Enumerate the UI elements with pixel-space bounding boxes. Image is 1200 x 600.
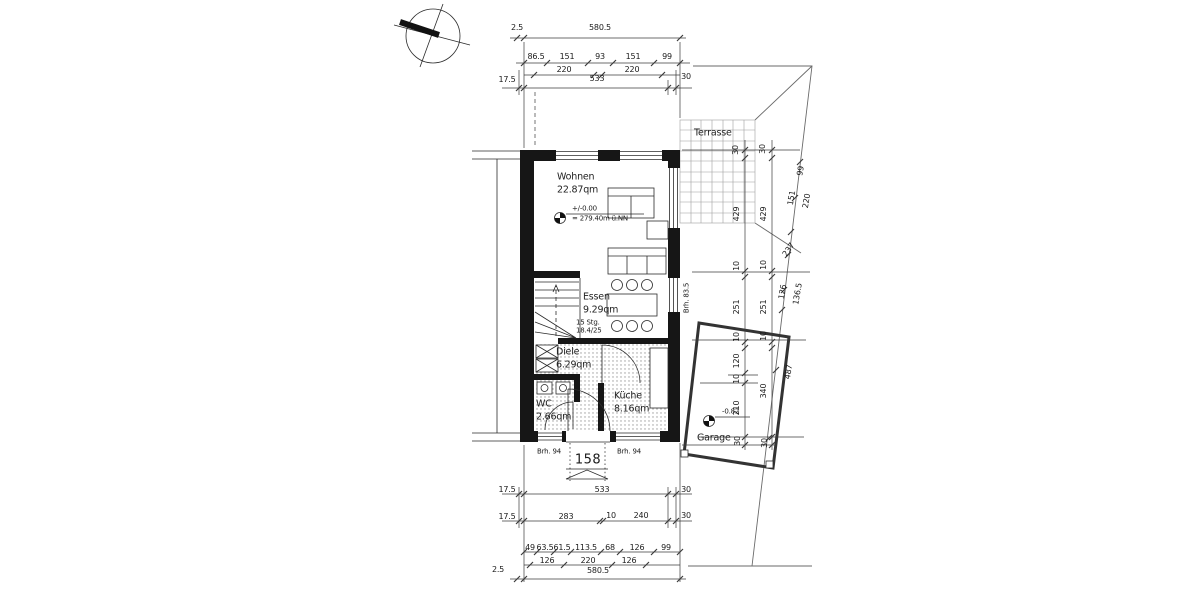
dims_right-4-99: 99 (796, 165, 806, 176)
dims_bottom-3-17.5: 17.5 (498, 513, 515, 521)
floorplan-canvas: 2.5580.586.5151931519922022017.55333017.… (0, 0, 1200, 600)
dims_bottom-6-240: 240 (634, 512, 649, 520)
dims_bottom-5-10: 10 (606, 512, 616, 520)
room-label-kueche: Küche (614, 391, 642, 401)
dims_bottom-2-30: 30 (681, 486, 691, 494)
dims_bottom-11-113.5: 113.5 (575, 544, 597, 552)
dims_bottom-17-126: 126 (622, 557, 637, 565)
dims_right-3-429: 429 (760, 207, 768, 222)
dims_bottom-8-49: 49 (525, 544, 535, 552)
dims_bottom-1-533: 533 (595, 486, 610, 494)
level-garage-value: -0.82 (722, 409, 739, 416)
dims_right-10-251: 251 (733, 300, 741, 315)
room-label-terrasse: Terrasse (694, 128, 732, 138)
room-area-wc: 2.66qm (536, 412, 571, 422)
north-arrow-icon (394, 4, 470, 67)
room-label-garage: Garage (697, 433, 731, 443)
dims_right-21-30: 30 (734, 436, 742, 446)
stairs-note-2: 18.4/25 (576, 328, 601, 335)
entrance-width: 158 (575, 454, 601, 467)
dims_right-22-30: 30 (761, 438, 769, 448)
room-area-wohnen: 22.87qm (557, 185, 598, 195)
dims_top-5-151: 151 (626, 53, 641, 61)
room-label-wohnen: Wohnen (557, 172, 594, 182)
room-label-essen: Essen (583, 292, 610, 302)
dims_top-2-86.5: 86.5 (527, 53, 544, 61)
dims_bottom-9-63.5: 63.5 (536, 544, 553, 552)
dims_right-11-251: 251 (760, 300, 768, 315)
dims_top-9-17.5: 17.5 (498, 76, 515, 84)
dims_right-2-429: 429 (733, 207, 741, 222)
room-label-wc: WC (536, 399, 552, 409)
kitchen-counter (650, 348, 668, 408)
dims_bottom-16-220: 220 (581, 557, 596, 565)
dims_right-17-10: 10 (733, 374, 741, 384)
dims_bottom-15-126: 126 (540, 557, 555, 565)
level-main-datum: = 279.40m ü.NN (572, 216, 628, 223)
dims_bottom-13-126: 126 (630, 544, 645, 552)
staircase (535, 278, 580, 338)
parapet-right: Brh. 94 (617, 449, 641, 456)
dims_bottom-4-283: 283 (559, 513, 574, 521)
dims_top-11-30: 30 (681, 73, 691, 81)
dims_top-0-2.5: 2.5 (511, 24, 523, 32)
room-area-essen: 9.29qm (583, 305, 618, 315)
dims_top-8-220: 220 (625, 66, 640, 74)
dims_right-14-10: 10 (733, 332, 741, 342)
dims_right-18-340: 340 (760, 384, 768, 399)
dims_bottom-12-68: 68 (605, 544, 615, 552)
room-area-diele: 6.29qm (556, 360, 591, 370)
dims_top-3-151: 151 (560, 53, 575, 61)
parapet-left: Brh. 94 (537, 449, 561, 456)
dims_bottom-7-30: 30 (681, 512, 691, 520)
room-label-diele: Diele (556, 347, 579, 357)
stairs-note-1: 15 Stg. (576, 320, 600, 327)
dims_bottom-14-99: 99 (661, 544, 671, 552)
dims_right-0-30: 30 (732, 145, 740, 155)
dims_top-10-533: 533 (590, 75, 605, 83)
dims_right-9-10: 10 (760, 260, 768, 270)
dims_top-1-580.5: 580.5 (589, 24, 611, 32)
dims_bottom-19-580.5: 580.5 (587, 567, 609, 575)
living-furniture (608, 188, 668, 274)
dims_bottom-0-17.5: 17.5 (498, 486, 515, 494)
parapet-side: Brh. 83.5 (684, 283, 691, 313)
room-area-kueche: 8.16qm (614, 404, 649, 414)
dims_top-4-93: 93 (595, 53, 605, 61)
dims_right-15-10: 10 (760, 331, 768, 341)
dims_bottom-18-2.5: 2.5 (492, 566, 504, 574)
dims_right-8-10: 10 (733, 261, 741, 271)
dims_right-16-120: 120 (733, 354, 741, 369)
elevation-marker-garage (704, 416, 751, 427)
dims_top-6-99: 99 (662, 53, 672, 61)
level-main-value: +/-0.00 (572, 206, 597, 213)
dims_top-7-220: 220 (557, 66, 572, 74)
dims_bottom-10-61.5: 61.5 (553, 544, 570, 552)
dims_right-1-30: 30 (759, 144, 767, 154)
